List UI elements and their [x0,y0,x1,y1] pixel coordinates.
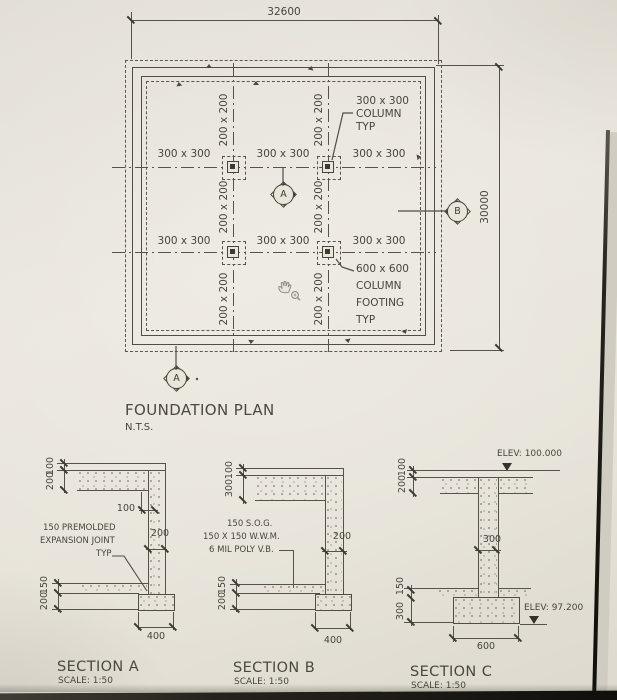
section-c-dim: 100 [398,458,408,476]
ground-slab-line [238,593,320,594]
slab-line [77,463,166,464]
slab-concrete [499,478,532,493]
section-b-note-line: 150 X 150 W.W.M. [203,533,280,542]
dim-ext-line [57,470,78,471]
grid-size-label: 200 x 200 [314,94,326,147]
dim-line [138,627,173,628]
section-a-dim: 200 [40,592,50,610]
dim-ext-line [436,65,504,66]
slab-line [440,470,560,471]
ground-line [52,609,138,610]
column-callout-line: 300 x 300 [356,96,409,108]
footing [138,594,175,611]
drawing-speck [206,64,212,68]
dim-ext-line [450,350,504,351]
slab-line [77,490,148,491]
marker-letter: B [447,201,468,222]
column-size-label: 300 x 300 [257,149,310,161]
footing [315,594,352,611]
dim-ext-line [236,468,257,469]
grid-line-vertical-1 [233,63,234,356]
ground-slab-concrete [263,585,324,593]
plan-height-dim: 30000 [480,190,492,223]
stray-dot [196,378,198,380]
ground-slab-concrete [438,589,477,597]
plan-scale-note: N.T.S. [125,422,153,433]
section-a-step-dim: 100 [117,504,135,514]
column-size-label: 300 x 300 [158,236,211,248]
column-callout-line: COLUMN [356,109,402,121]
ground-slab-line [59,593,139,594]
section-b-note-line: 6 MIL POLY V.B. [209,546,274,555]
leader-line [279,550,293,551]
section-a-wall-dim: 200 [151,529,169,539]
leader-line [293,550,294,588]
footing-callout-line: 600 x 600 [356,264,409,276]
footing-callout-line: TYP [356,315,375,327]
slab-line [498,493,533,494]
dim-line [315,628,350,629]
grid-size-label: 200 x 200 [314,181,326,234]
footing-callout-line: FOOTING [356,298,404,310]
column-size-label: 300 x 300 [353,149,406,161]
elevation-triangle-bottom [529,616,539,624]
ground-line [230,609,315,610]
slab-line [255,500,325,501]
section-c-elev-top: ELEV: 100.000 [497,450,562,460]
marker-letter: A [273,184,294,205]
section-a-dim: 200 [46,472,56,490]
column-core [230,164,235,169]
grid-size-label: 200 x 200 [314,273,326,326]
ground-slab-concrete [81,584,147,593]
plan-title: FOUNDATION PLAN [125,402,275,419]
section-c-dim: 150 [396,577,406,595]
photo-bottom-edge [0,691,617,700]
section-marker-b: B [440,194,474,228]
dim-line-30000 [499,65,500,350]
section-marker-a-plan: A [266,177,300,211]
section-b-note-line: 150 S.O.G. [227,520,272,529]
dim-ext-line [236,475,257,476]
grid-line-row-2 [112,252,436,253]
section-b-dim: 300 [225,479,235,497]
grid-line-row-1 [112,167,436,168]
drawing-speck [253,81,259,85]
section-b-footing-dim: 400 [324,636,342,646]
plan-width-dim: 32600 [267,7,300,19]
grid-size-label: 200 x 200 [219,273,231,326]
grid-line-vertical-2 [328,63,329,356]
section-c-dim: 200 [398,475,408,493]
section-marker-a-bottom: A [159,361,193,395]
marker-letter: A [166,368,187,389]
section-c-dim: 300 [396,602,406,620]
slab-concrete [441,478,477,493]
grid-size-label: 200 x 200 [219,94,231,147]
section-b-wall-dim: 200 [333,532,351,542]
section-c-elev-bottom: ELEV: 97.200 [524,604,583,614]
slab-concrete [256,476,324,500]
slab-line [440,493,478,494]
section-b-dim: 100 [225,461,235,479]
section-a-footing-dim: 400 [147,632,165,642]
footing-callout-line: COLUMN [356,281,402,293]
column-size-label: 300 x 300 [158,149,211,161]
section-b-title: SECTION B [233,661,315,677]
drawing-speck [417,154,422,161]
ground-slab-concrete [499,589,530,597]
section-a-title: SECTION A [57,660,139,676]
dim-line-32600 [131,20,438,21]
grid-size-label: 200 x 200 [219,181,231,234]
dim-line [453,638,518,639]
slab-line [255,468,344,469]
section-a-note-line: EXPANSION JOINT [40,537,115,546]
section-c-wall-dim: 300 [483,535,501,545]
elev-line [520,624,547,625]
section-c-title: SECTION C [410,665,492,681]
column-size-label: 300 x 300 [257,236,310,248]
column-core [325,164,330,169]
drawing-speck [248,340,254,345]
drawing-photo: 32600 300 x 300 300 x 300 300 x 300 300 … [0,0,617,700]
section-a-note-line: TYP [96,550,112,559]
footing [453,597,520,624]
section-c-footing-dim: 600 [477,642,495,652]
column-core [325,249,330,254]
slab-concrete [78,471,147,490]
dim-ext-line [57,463,78,464]
column-size-label: 300 x 300 [353,236,406,248]
column-callout-line: TYP [356,122,375,134]
section-a-note-line: 150 PREMOLDED [43,524,116,533]
section-b-dim: 200 [218,592,228,610]
column-core [230,249,235,254]
